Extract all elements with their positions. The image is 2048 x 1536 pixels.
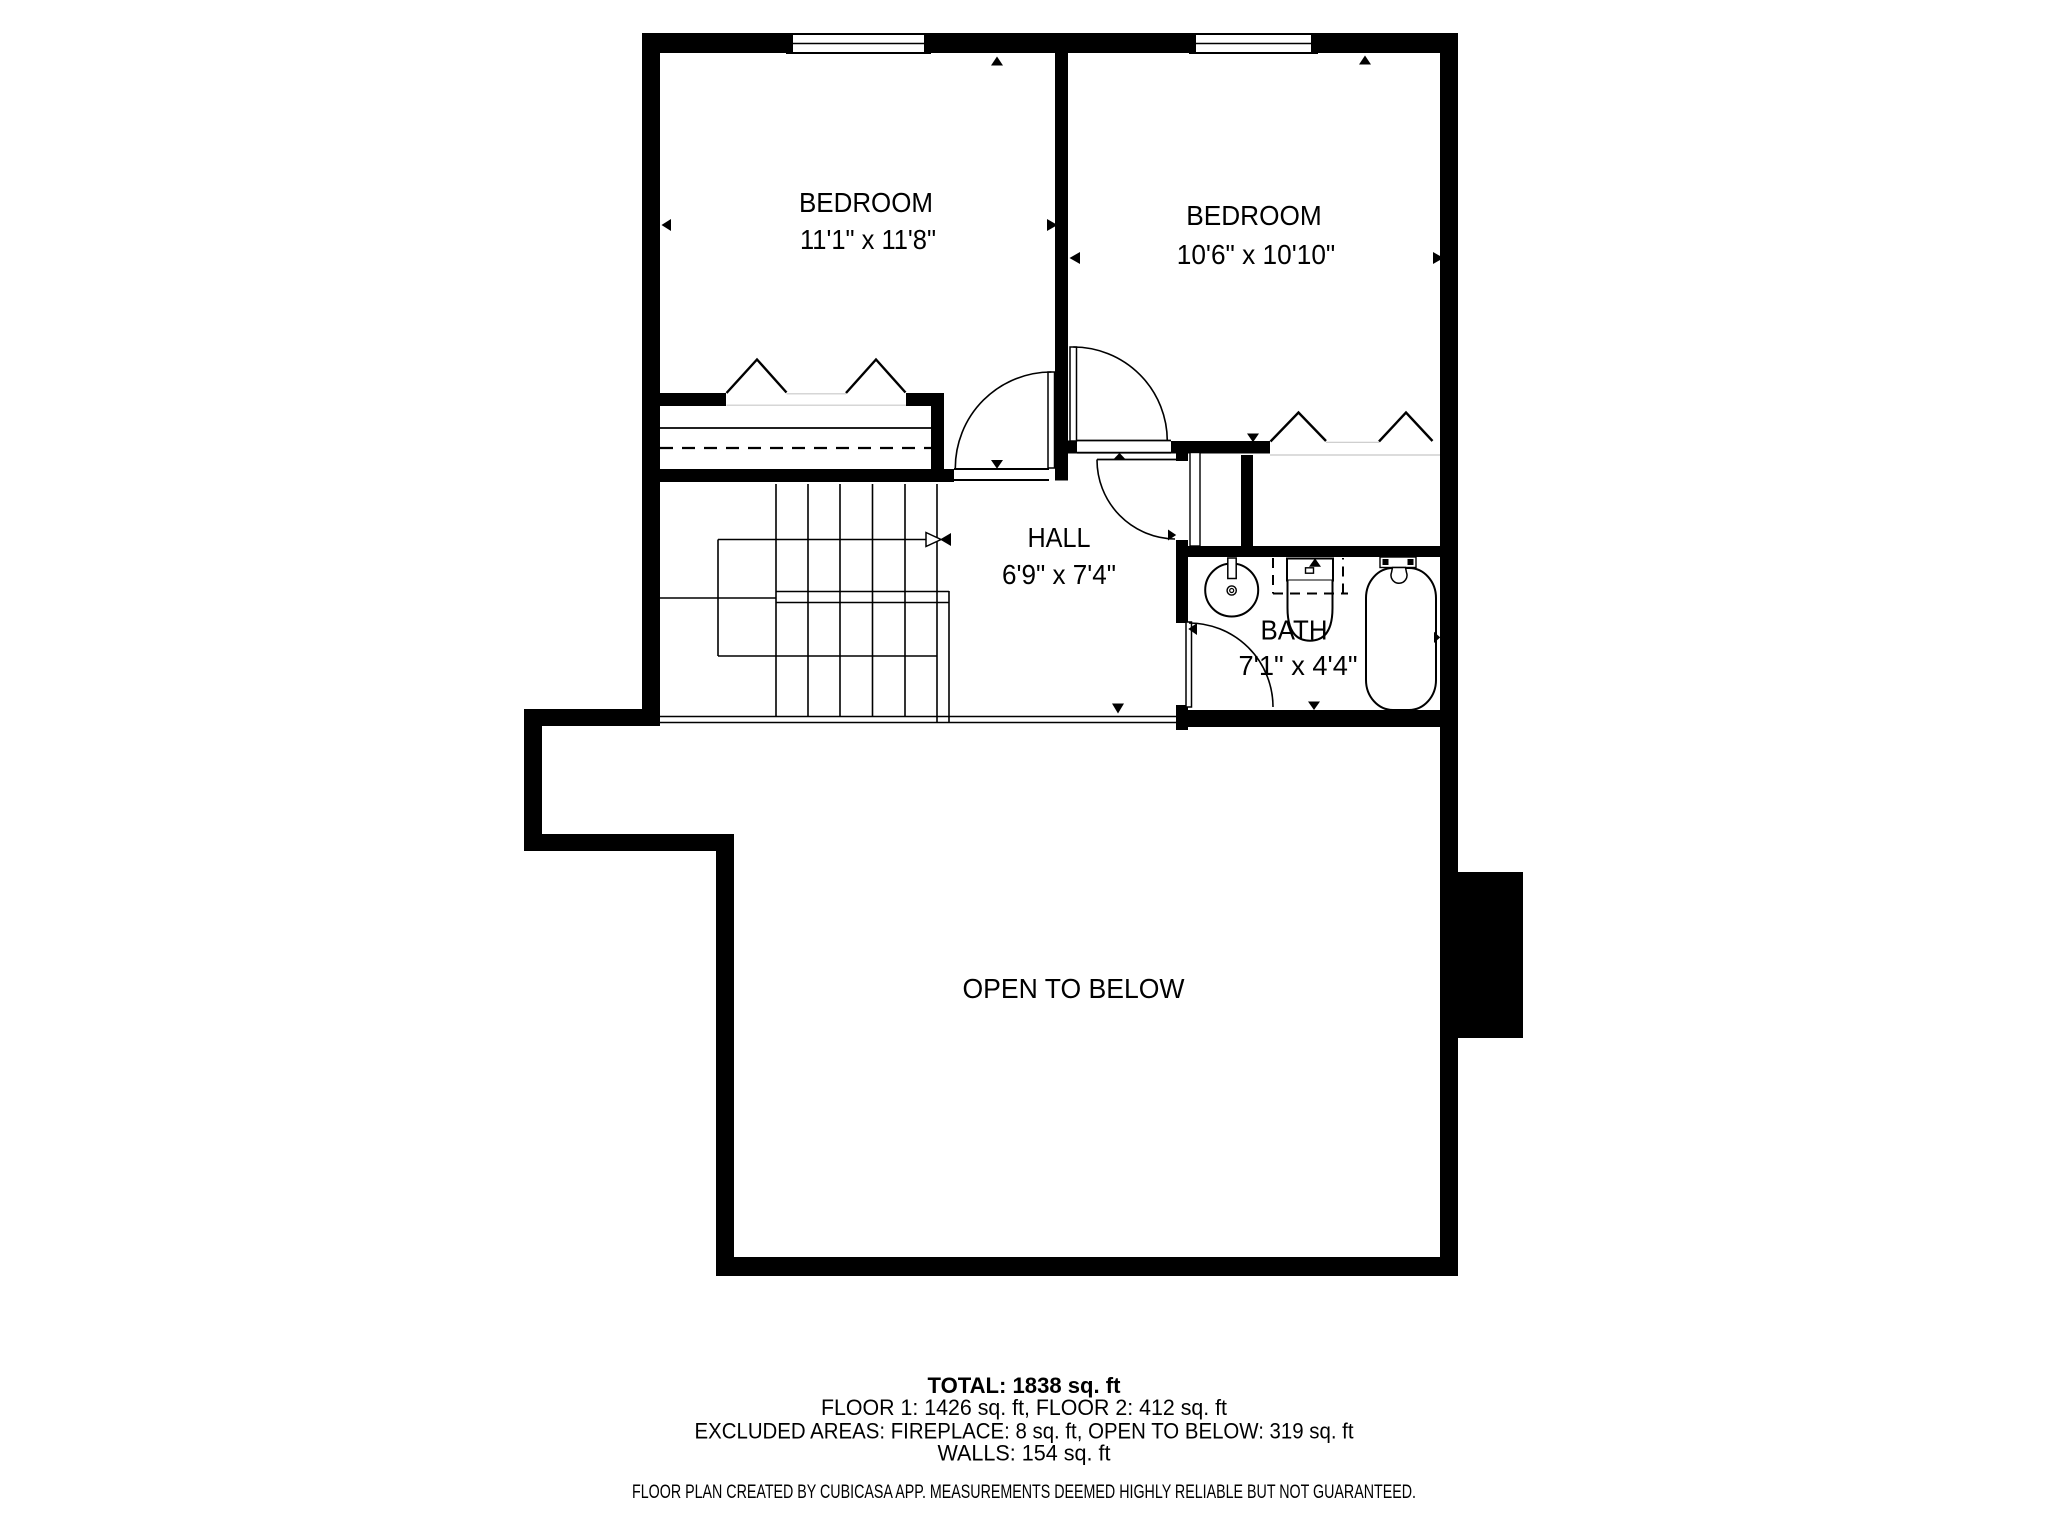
svg-text:FLOOR 1: 1426 sq. ft, FLOOR 2:: FLOOR 1: 1426 sq. ft, FLOOR 2: 412 sq. f… (821, 1395, 1227, 1420)
svg-text:HALL: HALL (1028, 522, 1091, 553)
svg-text:WALLS: 154 sq. ft: WALLS: 154 sq. ft (938, 1441, 1111, 1466)
svg-text:11'1" x 11'8": 11'1" x 11'8" (800, 224, 936, 255)
svg-text:BEDROOM: BEDROOM (1186, 200, 1322, 231)
svg-text:6'9" x 7'4": 6'9" x 7'4" (1002, 559, 1116, 590)
svg-text:FLOOR PLAN CREATED BY CUBICASA: FLOOR PLAN CREATED BY CUBICASA APP. MEAS… (632, 1482, 1416, 1503)
svg-text:7'1" x 4'4": 7'1" x 4'4" (1239, 650, 1358, 681)
svg-text:BEDROOM: BEDROOM (799, 187, 933, 218)
svg-text:BATH: BATH (1261, 615, 1328, 646)
svg-text:10'6" x 10'10": 10'6" x 10'10" (1177, 239, 1336, 270)
svg-text:OPEN TO BELOW: OPEN TO BELOW (963, 973, 1186, 1004)
